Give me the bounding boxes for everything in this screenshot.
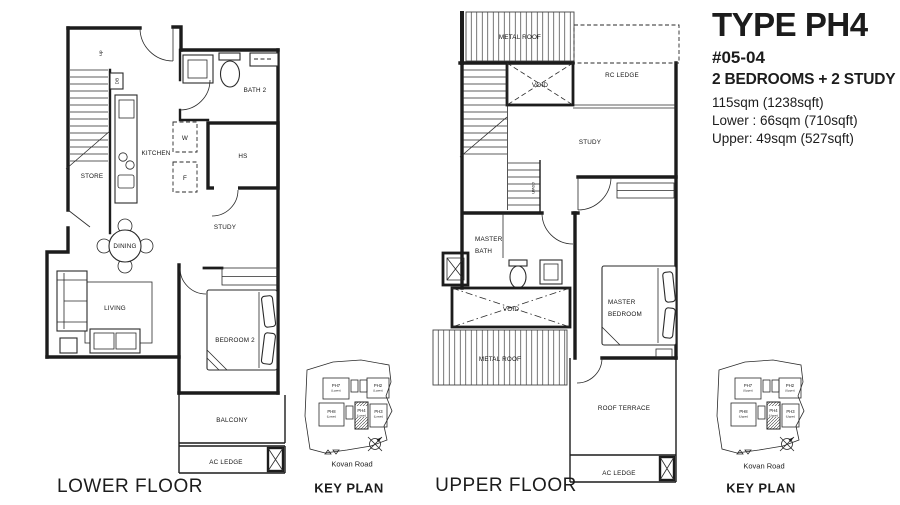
upper-floor-plan: down [430,5,685,495]
compass-icon [780,437,794,451]
bedroom2-label: BEDROOM 2 [215,337,255,344]
core-1 [763,380,770,392]
ph3-label: PH3 [786,409,795,414]
lower-staircase: up [66,50,110,169]
area-upper: Upper: 49sqm (527sqft) [712,130,898,148]
roof-terrace-label: ROOF TERRACE [598,405,650,412]
hs-label: HS [238,153,247,160]
master-bath-label-2: BATH [475,248,492,255]
area-total: 115sqm (1238sqft) [712,94,898,112]
ac-ledge-label: AC LEDGE [209,459,242,466]
master-bedroom-furniture [602,183,676,357]
void-lower-label: VOID [503,306,519,313]
type-title: TYPE PH4 [712,8,898,43]
floorplan-sheet: up DB W F [0,0,900,505]
ph7-sub: (Upper) [743,389,753,393]
rc-ledge-area [574,25,679,63]
ac-ledge-label: AC LEDGE [602,470,635,477]
side-table [60,338,77,353]
ph4-label: PH4 [357,408,366,413]
metal-roof-top-label: METAL ROOF [499,34,541,41]
kovan-road-label-lower: Kovan Road [331,460,372,469]
title-block: TYPE PH4 #05-04 2 BEDROOMS + 2 STUDY 115… [712,8,898,148]
ph4-sub: (Upper) [769,414,779,418]
ph8-sub: (Lower) [327,415,337,419]
upper-floor-caption: UPPER FLOOR [435,475,577,497]
terrace-acledge [570,358,676,482]
db-box: DB [110,73,123,89]
compass-icon [368,437,382,451]
bench [656,349,672,357]
stairs-up-label: up [98,50,103,56]
washer-box: W [173,122,197,152]
kovan-road-label-upper: Kovan Road [743,462,784,471]
key-plan-caption-lower: KEY PLAN [314,481,384,496]
metal-roof-bottom-label: METAL ROOF [479,356,521,363]
core-2 [772,380,779,392]
ph2-sub: (Upper) [785,389,795,393]
vanity-icon [250,53,278,66]
study-label: STUDY [214,224,237,231]
ph2-sub: (Lower) [373,389,383,393]
lower-floor-caption: LOWER FLOOR [57,476,203,498]
ph4-label: PH4 [769,408,778,413]
ph8-sub: (Upper) [739,415,749,419]
ph2-label: PH2 [374,383,383,388]
void-upper-label: VOID [532,82,548,89]
fridge-box: F [173,162,197,192]
ph7-label: PH7 [744,383,753,388]
ph2-label: PH2 [786,383,795,388]
master-bath-label-1: MASTER [475,236,503,243]
key-plan-caption-upper: KEY PLAN [726,481,796,496]
ph4-sub: (Lower) [357,414,367,418]
living-furniture [57,271,152,353]
dining-label: DINING [113,243,136,250]
rc-ledge-label: RC LEDGE [605,72,639,79]
ph8-label: PH8 [327,409,336,414]
ph8-label: PH8 [739,409,748,414]
bedroom2-furniture [207,268,278,370]
core-3 [346,406,353,419]
core-1 [351,380,358,392]
ph3-sub: (Lower) [374,415,384,419]
bath2-label: BATH 2 [244,87,267,94]
configuration: 2 BEDROOMS + 2 STUDY [712,71,898,89]
fridge-label: F [183,175,187,182]
key-plan-lower: PH7 (Lower) PH2 (Lower) PH8 (Lower) PH4 … [299,356,399,468]
key-plan-upper: PH7 (Upper) PH2 (Upper) PH8 (Upper) PH4 … [711,356,811,468]
core-2 [360,380,367,392]
ph3-label: PH3 [374,409,383,414]
db-label: DB [115,78,120,85]
master-bedroom-label-1: MASTER [608,299,636,306]
unit-number: #05-04 [712,48,898,68]
hs-shelter [208,123,278,216]
balcony-label: BALCONY [216,417,248,424]
ph3-sub: (Upper) [786,415,796,419]
kitchen-counter [115,95,137,203]
core-3 [758,406,765,419]
stairs-down-label: down [531,182,536,194]
shower-icon [183,55,213,83]
living-label: LIVING [104,305,126,312]
master-bedroom-label-2: BEDROOM [608,311,642,318]
ph7-label: PH7 [332,383,341,388]
kitchen-label: KITCHEN [141,150,170,157]
lower-floor-plan: up DB W F [40,15,290,480]
washer-label: W [182,135,188,142]
study-label: STUDY [579,139,602,146]
bath2-fixtures [183,53,278,87]
toilet-icon [219,53,240,60]
toilet-icon [509,260,527,266]
upper-staircase: down [460,63,540,213]
ph7-sub: (Lower) [331,389,341,393]
store-label: STORE [81,173,104,180]
area-lower: Lower : 66sqm (710sqft) [712,112,898,130]
